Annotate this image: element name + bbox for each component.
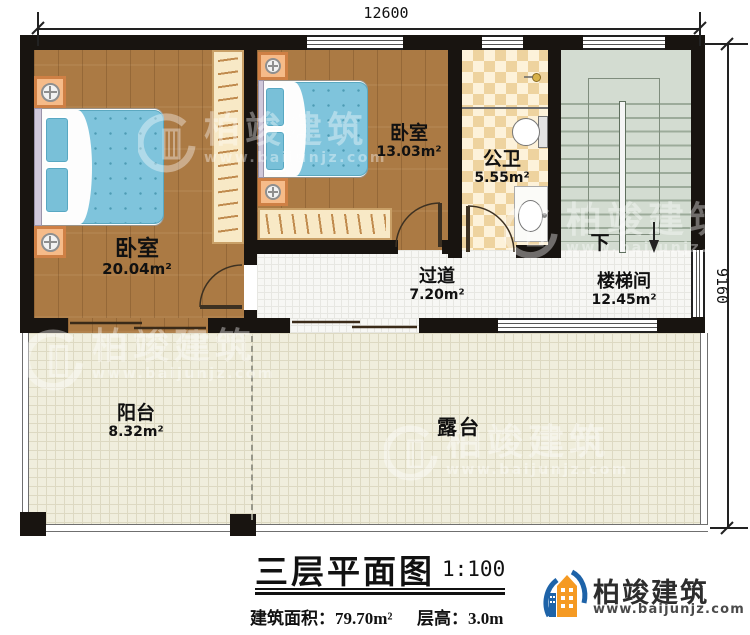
room-area: 8.32m² [76, 424, 196, 440]
dimension-extension [710, 527, 748, 529]
building-info: 建筑面积：79.70m² 层高：3.0m [250, 604, 503, 629]
window [583, 35, 665, 50]
shower-divider [462, 107, 548, 109]
room-area: 5.55m² [462, 170, 542, 186]
wardrobe [212, 50, 244, 244]
terrace-railing [700, 333, 708, 524]
company-website: www.baijunjz.com [593, 602, 745, 617]
company-logo-icon [541, 566, 589, 622]
room-label-bedroom2: 卧室 13.03m² [349, 124, 469, 160]
room-name: 阳台 [76, 404, 196, 424]
lamp-icon [41, 233, 60, 252]
room-area: 12.45m² [578, 292, 670, 308]
window [307, 35, 403, 50]
room-label-hallway: 过道 7.20m² [397, 268, 477, 303]
area-value: 79.70m² [335, 609, 393, 628]
toilet [512, 118, 540, 146]
sliding-door-bedroom1 [68, 318, 208, 333]
stairs-direction-label: 下 [586, 234, 614, 254]
room-area: 20.04m² [77, 261, 197, 278]
wardrobe-hangers [218, 56, 238, 238]
dimension-extension [37, 12, 39, 46]
sink-faucet-icon [542, 213, 547, 218]
title-underline [255, 588, 505, 590]
bed-headboard [34, 108, 42, 226]
floor-height-value: 3.0m [468, 609, 503, 628]
dimension-width-label: 12600 [346, 4, 426, 22]
balcony-railing [22, 333, 29, 524]
drawing-title: 三层平面图 [255, 545, 435, 593]
area-label: 建筑面积： [250, 609, 335, 628]
nightstand [34, 226, 66, 258]
nightstand [258, 178, 288, 206]
drawing-scale: 1:100 [442, 557, 505, 581]
room-label-bedroom1: 卧室 20.04m² [77, 238, 197, 278]
floor-plan-canvas: 柏竣建筑 www.baijunjz.com 柏竣建筑 www.baijunjz.… [0, 0, 750, 635]
sink-basin [518, 200, 543, 232]
dimension-height-label: 9160 [702, 266, 742, 306]
wall-bottom-seg [20, 318, 68, 333]
balcony-pillar [20, 512, 46, 536]
wall-bedroom-divider [244, 50, 257, 265]
nightstand [258, 52, 288, 80]
room-name: 卧室 [349, 124, 469, 144]
lamp-icon [265, 184, 281, 200]
wall-bottom-seg [657, 318, 705, 333]
dimension-extension [699, 12, 701, 46]
lamp-icon [265, 58, 281, 74]
wall-left [20, 35, 34, 333]
shower-head-icon [532, 73, 541, 82]
room-label-bathroom: 公卫 5.55m² [462, 150, 542, 186]
room-label-stairwell: 楼梯间 12.45m² [578, 273, 670, 308]
wall-bottom-seg [419, 318, 498, 333]
room-name: 公卫 [462, 150, 542, 170]
window [482, 35, 523, 50]
wall-bottom-seg [208, 318, 290, 333]
window [498, 318, 657, 333]
floor-height-label: 层高： [417, 609, 468, 628]
room-label-terrace: 露台 [399, 417, 519, 438]
pillow [44, 166, 70, 214]
pillow [44, 116, 70, 164]
terrace-railing-bottom [22, 524, 708, 532]
room-area: 7.20m² [397, 287, 477, 303]
wall-bedroom2-bottom [257, 240, 398, 254]
lamp-icon [41, 83, 60, 102]
room-area: 13.03m² [349, 144, 469, 160]
room-label-balcony: 阳台 8.32m² [76, 404, 196, 440]
dimension-line-top [38, 28, 700, 30]
room-name: 楼梯间 [578, 273, 670, 292]
room-name: 卧室 [77, 238, 197, 261]
dimension-line-right [727, 44, 729, 528]
dimension-extension [704, 43, 748, 45]
room-name: 过道 [397, 268, 477, 287]
stairs-handrail [619, 101, 626, 253]
balcony-terrace-boundary [251, 336, 253, 520]
wardrobe-hangers [264, 214, 386, 234]
nightstand [34, 76, 66, 108]
pillow [264, 130, 286, 172]
pillow [264, 86, 286, 128]
title-underline [255, 592, 505, 595]
sliding-door-hallway [290, 318, 419, 333]
wall-bathroom-stairwell [548, 50, 561, 258]
room-name: 露台 [399, 417, 519, 438]
wardrobe [258, 208, 392, 240]
